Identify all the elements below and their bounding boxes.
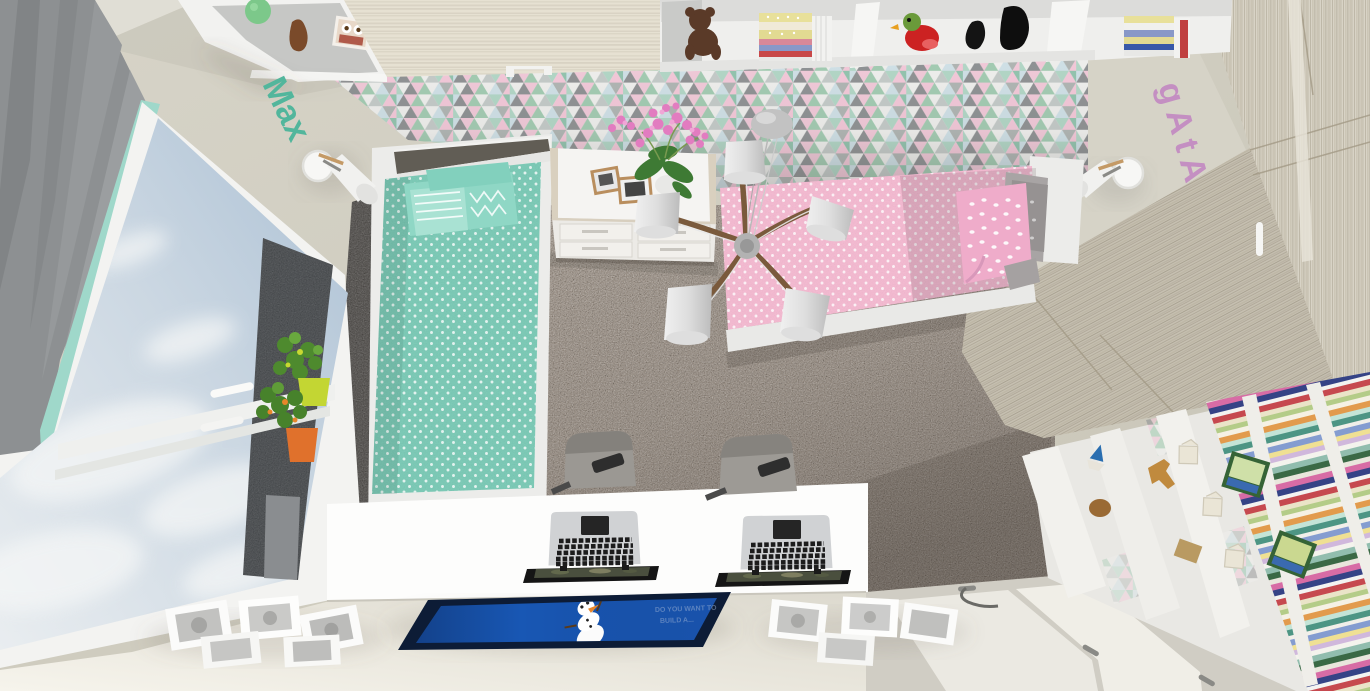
svg-text:BUILD A...: BUILD A... <box>660 617 694 625</box>
